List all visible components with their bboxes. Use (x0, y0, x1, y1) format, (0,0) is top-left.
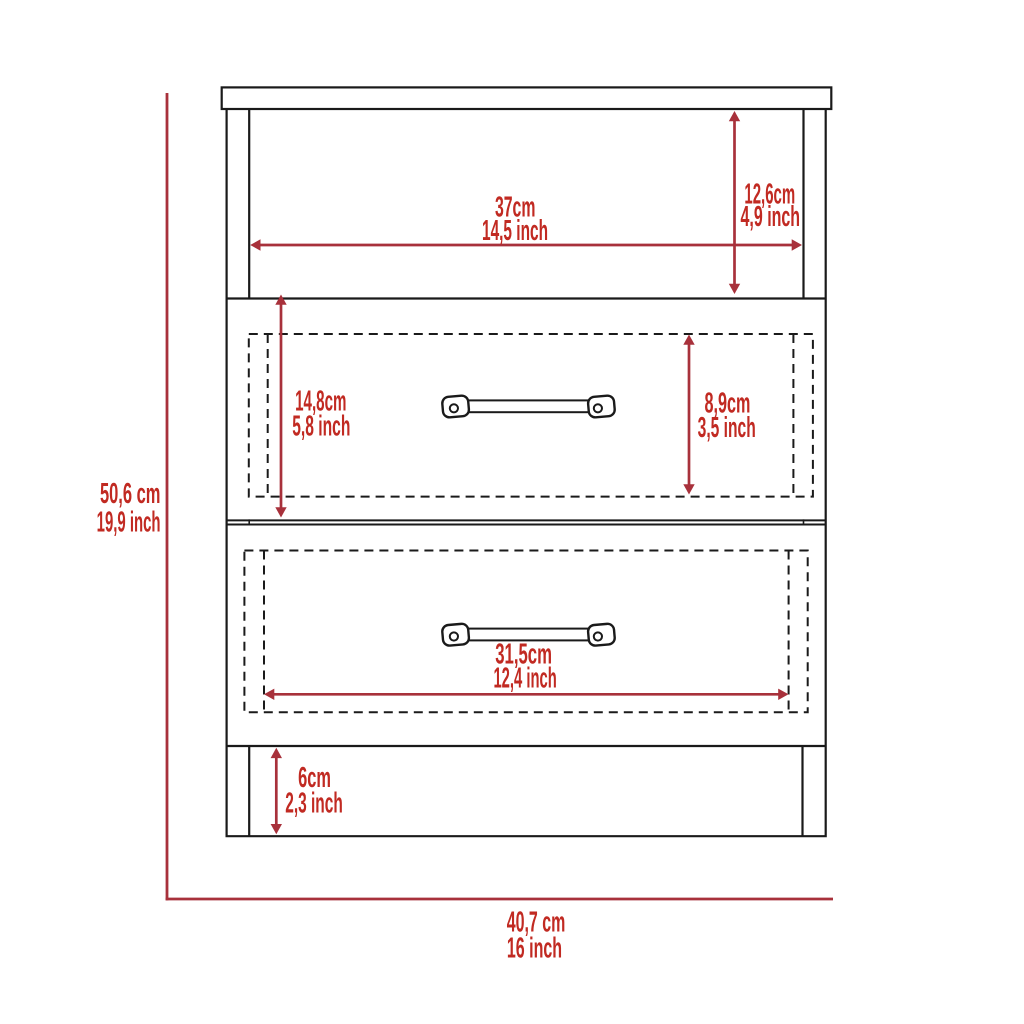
svg-text:5,8 inch: 5,8 inch (292, 410, 350, 442)
svg-text:12,4 inch: 12,4 inch (493, 662, 556, 694)
svg-text:19,9 inch: 19,9 inch (97, 507, 161, 539)
svg-text:14,5 inch: 14,5 inch (482, 215, 548, 247)
svg-text:2,3 inch: 2,3 inch (285, 787, 343, 819)
svg-text:4,9 inch: 4,9 inch (741, 201, 801, 233)
svg-text:50,6 cm: 50,6 cm (100, 478, 161, 510)
svg-text:3,5 inch: 3,5 inch (698, 412, 756, 444)
svg-text:16 inch: 16 inch (507, 932, 562, 964)
